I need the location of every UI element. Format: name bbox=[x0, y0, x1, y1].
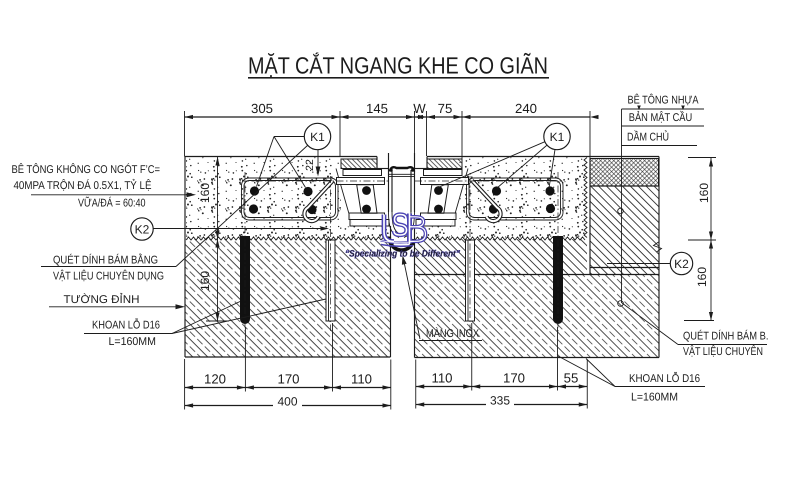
svg-text:160: 160 bbox=[198, 271, 212, 291]
svg-text:145: 145 bbox=[366, 101, 388, 116]
svg-text:55: 55 bbox=[564, 371, 579, 386]
svg-text:VỮA/ĐÁ = 60:40: VỮA/ĐÁ = 60:40 bbox=[78, 197, 146, 210]
svg-text:L=160MM: L=160MM bbox=[109, 336, 157, 348]
svg-text:VẬT LIỆU CHUYÊN: VẬT LIỆU CHUYÊN bbox=[683, 345, 763, 358]
svg-text:160: 160 bbox=[697, 183, 711, 203]
svg-text:75: 75 bbox=[438, 101, 453, 116]
svg-text:40MPA TRỘN ĐÁ 0.5X1, TỶ LỆ: 40MPA TRỘN ĐÁ 0.5X1, TỶ LỆ bbox=[14, 178, 152, 192]
svg-text:MÀNG INOX: MÀNG INOX bbox=[426, 327, 479, 340]
svg-text:335: 335 bbox=[490, 394, 510, 408]
svg-text:BÊ TÔNG NHỰA: BÊ TÔNG NHỰA bbox=[628, 94, 699, 107]
svg-text:DẦM CHỦ: DẦM CHỦ bbox=[627, 130, 669, 144]
svg-text:“Specializing to be Different”: “Specializing to be Different” bbox=[345, 249, 460, 259]
svg-text:QUÉT DÍNH BÁM B.: QUÉT DÍNH BÁM B. bbox=[683, 330, 769, 343]
svg-text:170: 170 bbox=[277, 372, 299, 387]
svg-text:MẶT CẮT NGANG KHE CO GIÃN: MẶT CẮT NGANG KHE CO GIÃN bbox=[248, 52, 548, 79]
svg-text:K2: K2 bbox=[674, 257, 689, 271]
svg-text:W: W bbox=[413, 101, 426, 116]
svg-text:240: 240 bbox=[515, 101, 537, 116]
svg-text:K1: K1 bbox=[550, 130, 565, 144]
svg-text:305: 305 bbox=[251, 101, 273, 116]
svg-text:BẢN MẬT CẦU: BẢN MẬT CẦU bbox=[629, 110, 693, 124]
svg-text:L=160MM: L=160MM bbox=[631, 392, 678, 404]
svg-text:K1: K1 bbox=[310, 130, 325, 144]
svg-text:K2: K2 bbox=[135, 223, 150, 237]
svg-text:160: 160 bbox=[198, 183, 212, 203]
svg-text:120: 120 bbox=[204, 372, 226, 387]
svg-text:170: 170 bbox=[503, 371, 525, 386]
svg-text:400: 400 bbox=[277, 395, 297, 409]
svg-text:110: 110 bbox=[351, 372, 372, 387]
svg-text:KHOAN LỖ D16: KHOAN LỖ D16 bbox=[92, 318, 160, 332]
svg-text:BÊ TÔNG KHÔNG CO NGÓT F’C=: BÊ TÔNG KHÔNG CO NGÓT F’C= bbox=[12, 163, 161, 176]
svg-text:110: 110 bbox=[431, 371, 452, 386]
svg-text:TƯỜNG ĐỈNH: TƯỜNG ĐỈNH bbox=[64, 292, 140, 306]
svg-text:22: 22 bbox=[304, 159, 316, 171]
svg-text:160: 160 bbox=[695, 267, 709, 287]
svg-text:QUÉT DÍNH BÁM BẰNG: QUÉT DÍNH BÁM BẰNG bbox=[53, 253, 158, 267]
svg-text:KHOAN LỖ D16: KHOAN LỖ D16 bbox=[629, 371, 700, 385]
svg-text:VẬT LIỆU CHUYÊN DỤNG: VẬT LIỆU CHUYÊN DỤNG bbox=[53, 270, 164, 283]
